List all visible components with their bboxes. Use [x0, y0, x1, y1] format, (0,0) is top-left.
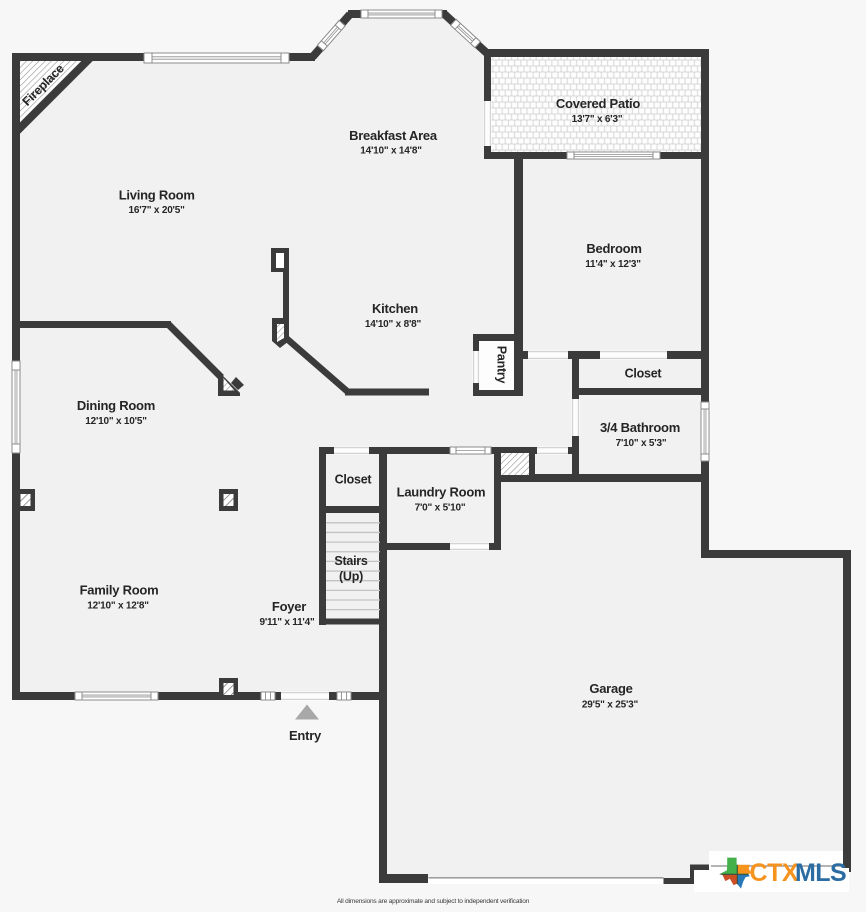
svg-text:29'5" x 25'3": 29'5" x 25'3" — [582, 700, 639, 711]
svg-text:Closet: Closet — [335, 473, 373, 487]
svg-text:12'10" x 12'8": 12'10" x 12'8" — [87, 601, 149, 612]
svg-text:7'0" x 5'10": 7'0" x 5'10" — [415, 503, 466, 514]
svg-text:Foyer: Foyer — [272, 599, 306, 614]
svg-text:Bedroom: Bedroom — [586, 241, 641, 256]
svg-text:(Up): (Up) — [339, 570, 363, 584]
svg-text:Dining Room: Dining Room — [77, 398, 155, 413]
svg-text:13'7" x 6'3": 13'7" x 6'3" — [572, 114, 623, 125]
svg-text:Living Room: Living Room — [119, 188, 195, 203]
svg-text:Breakfast Area: Breakfast Area — [349, 128, 438, 143]
svg-text:16'7" x 20'5": 16'7" x 20'5" — [129, 205, 186, 216]
svg-text:CTX: CTX — [750, 859, 799, 887]
svg-text:Closet: Closet — [625, 367, 663, 381]
svg-text:Entry: Entry — [289, 728, 322, 743]
svg-text:All dimensions are approximate: All dimensions are approximate and subje… — [337, 898, 530, 905]
svg-text:14'10" x 14'8": 14'10" x 14'8" — [360, 146, 422, 157]
svg-text:14'10" x 8'8": 14'10" x 8'8" — [365, 319, 422, 330]
svg-text:12'10" x 10'5": 12'10" x 10'5" — [85, 416, 147, 427]
svg-text:3/4 Bathroom: 3/4 Bathroom — [600, 420, 680, 435]
svg-text:Family Room: Family Room — [80, 583, 159, 598]
svg-text:9'11" x 11'4": 9'11" x 11'4" — [259, 617, 314, 628]
svg-text:11'4" x 12'3": 11'4" x 12'3" — [585, 259, 641, 270]
svg-text:Stairs: Stairs — [334, 554, 368, 568]
svg-text:Garage: Garage — [589, 681, 632, 696]
svg-text:Kitchen: Kitchen — [372, 301, 418, 316]
svg-text:Covered Patio: Covered Patio — [556, 96, 640, 111]
svg-text:Laundry Room: Laundry Room — [397, 485, 486, 500]
svg-text:MLS: MLS — [795, 859, 846, 887]
svg-text:Pantry: Pantry — [495, 346, 509, 384]
svg-text:7'10" x 5'3": 7'10" x 5'3" — [616, 438, 667, 449]
